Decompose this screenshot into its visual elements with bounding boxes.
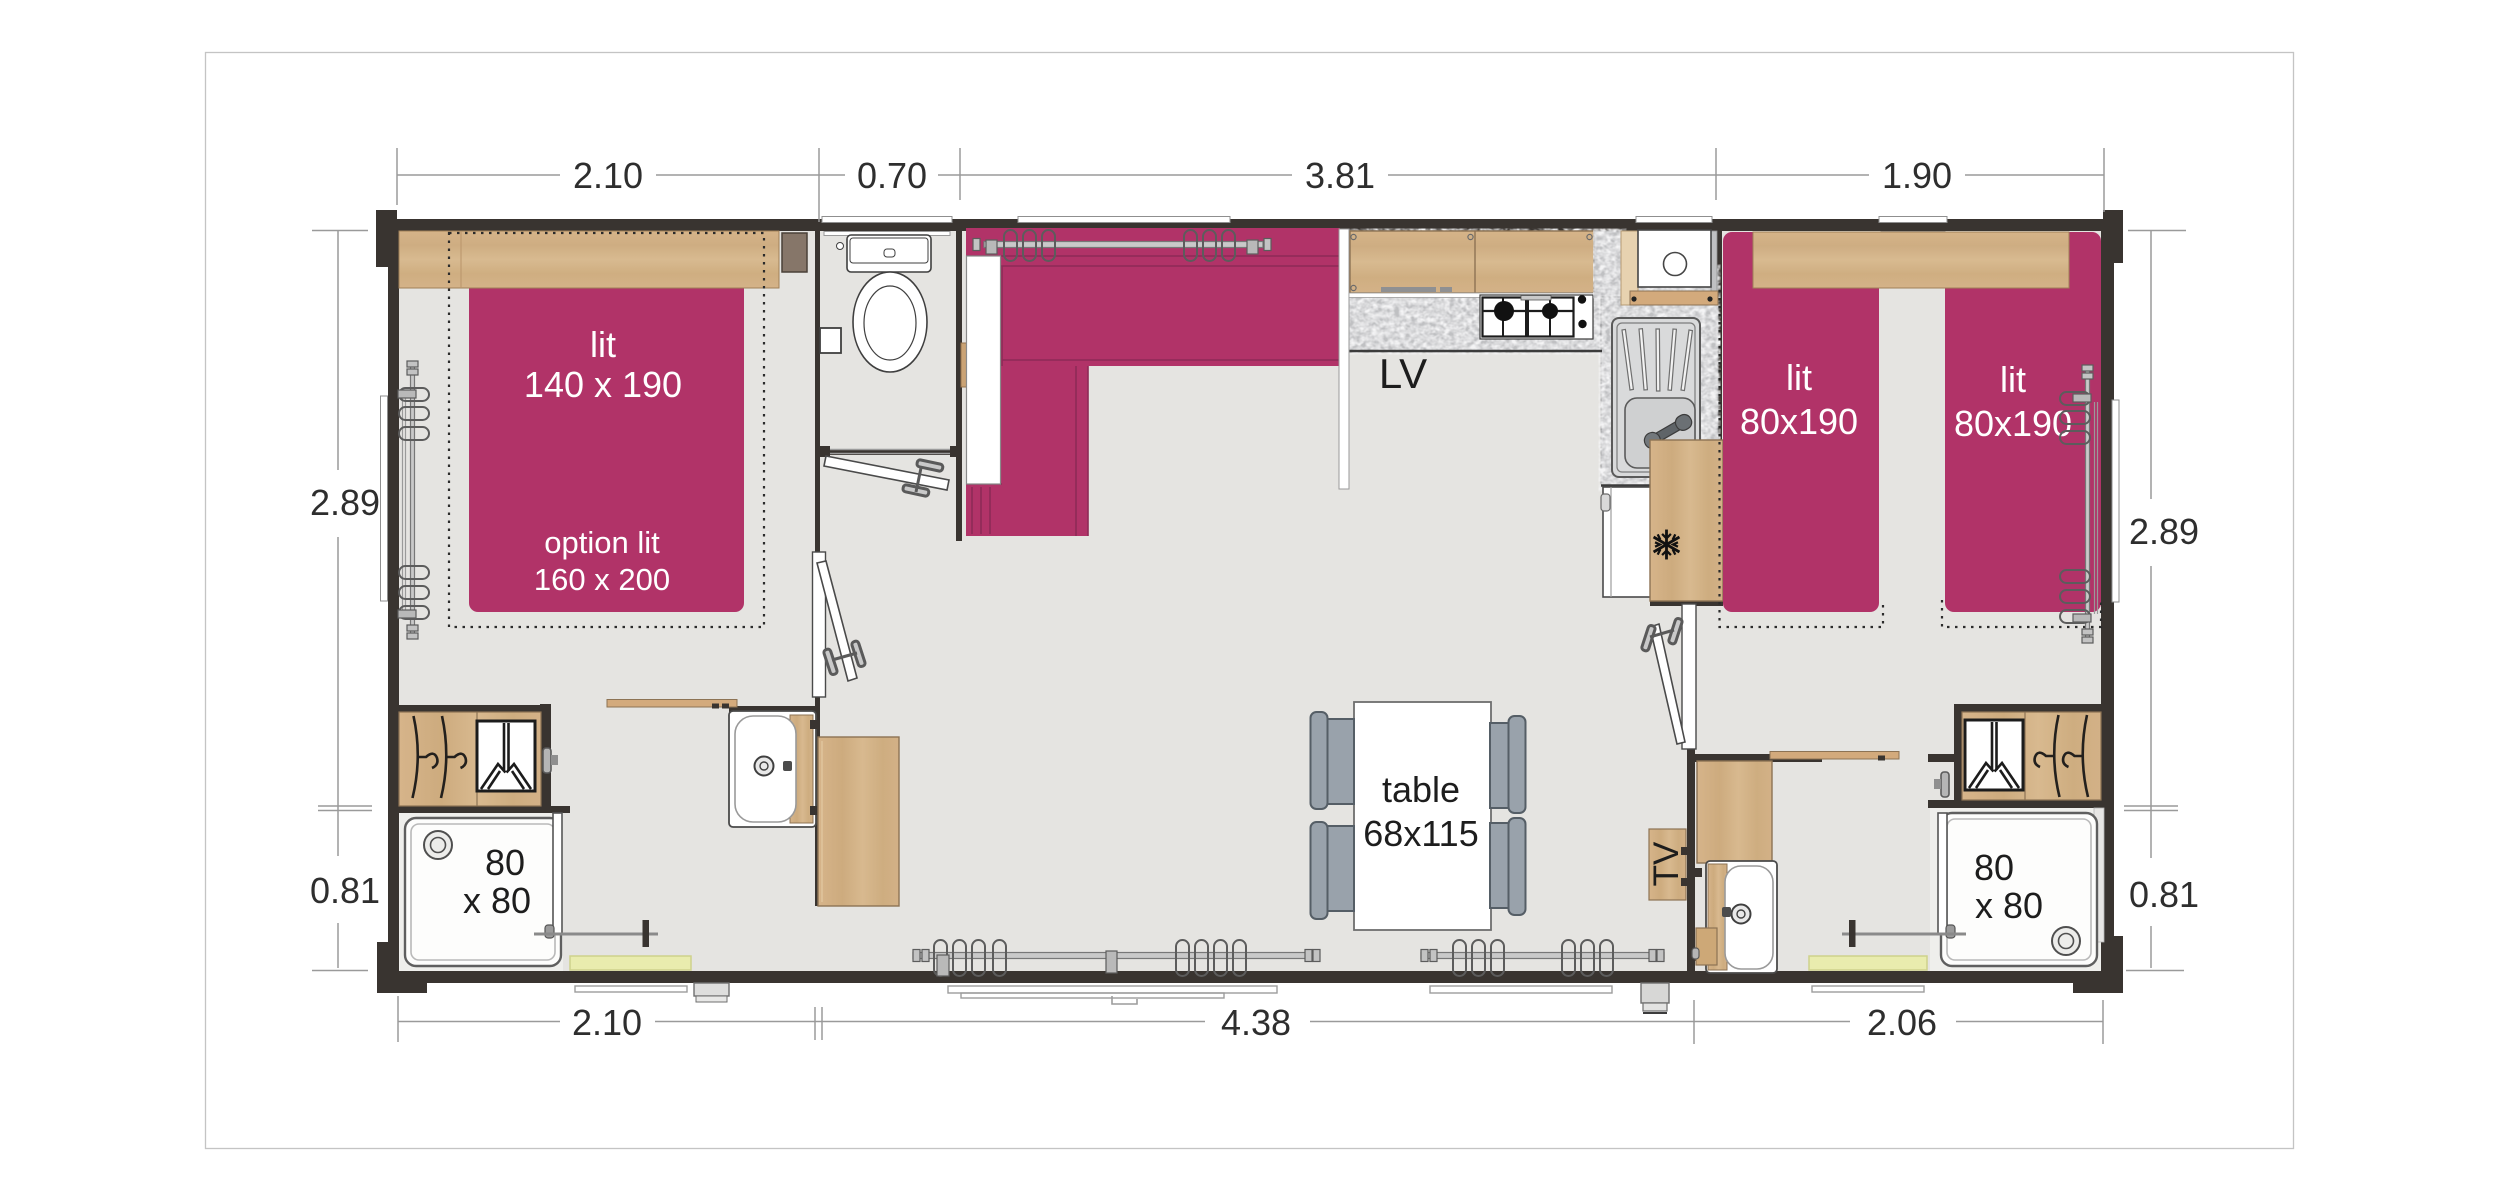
svg-text:80x190: 80x190: [1740, 401, 1858, 442]
svg-text:0.81: 0.81: [2129, 874, 2199, 915]
svg-text:2.10: 2.10: [572, 1002, 642, 1043]
svg-text:80x190: 80x190: [1954, 403, 2072, 444]
svg-text:80: 80: [485, 842, 525, 883]
svg-text:3.81: 3.81: [1305, 155, 1375, 196]
svg-text:lit: lit: [1786, 357, 1812, 398]
svg-text:2.89: 2.89: [310, 482, 380, 523]
svg-text:68x115: 68x115: [1363, 813, 1478, 854]
svg-text:x 80: x 80: [1975, 885, 2043, 926]
svg-text:2.06: 2.06: [1867, 1002, 1937, 1043]
svg-text:TV: TV: [1647, 841, 1686, 886]
svg-text:0.81: 0.81: [310, 870, 380, 911]
svg-text:option lit: option lit: [544, 525, 660, 560]
svg-text:0.70: 0.70: [857, 155, 927, 196]
svg-text:2.89: 2.89: [2129, 511, 2199, 552]
svg-text:x 80: x 80: [463, 880, 531, 921]
svg-text:table: table: [1382, 769, 1460, 810]
svg-text:4.38: 4.38: [1221, 1002, 1291, 1043]
svg-text:160 x 200: 160 x 200: [534, 562, 670, 597]
svg-text:LV: LV: [1379, 350, 1427, 397]
svg-text:lit: lit: [590, 324, 616, 365]
svg-text:2.10: 2.10: [573, 155, 643, 196]
svg-text:1.90: 1.90: [1882, 155, 1952, 196]
svg-text:80: 80: [1974, 847, 2014, 888]
svg-text:140 x 190: 140 x 190: [524, 364, 682, 405]
svg-text:lit: lit: [2000, 359, 2026, 400]
